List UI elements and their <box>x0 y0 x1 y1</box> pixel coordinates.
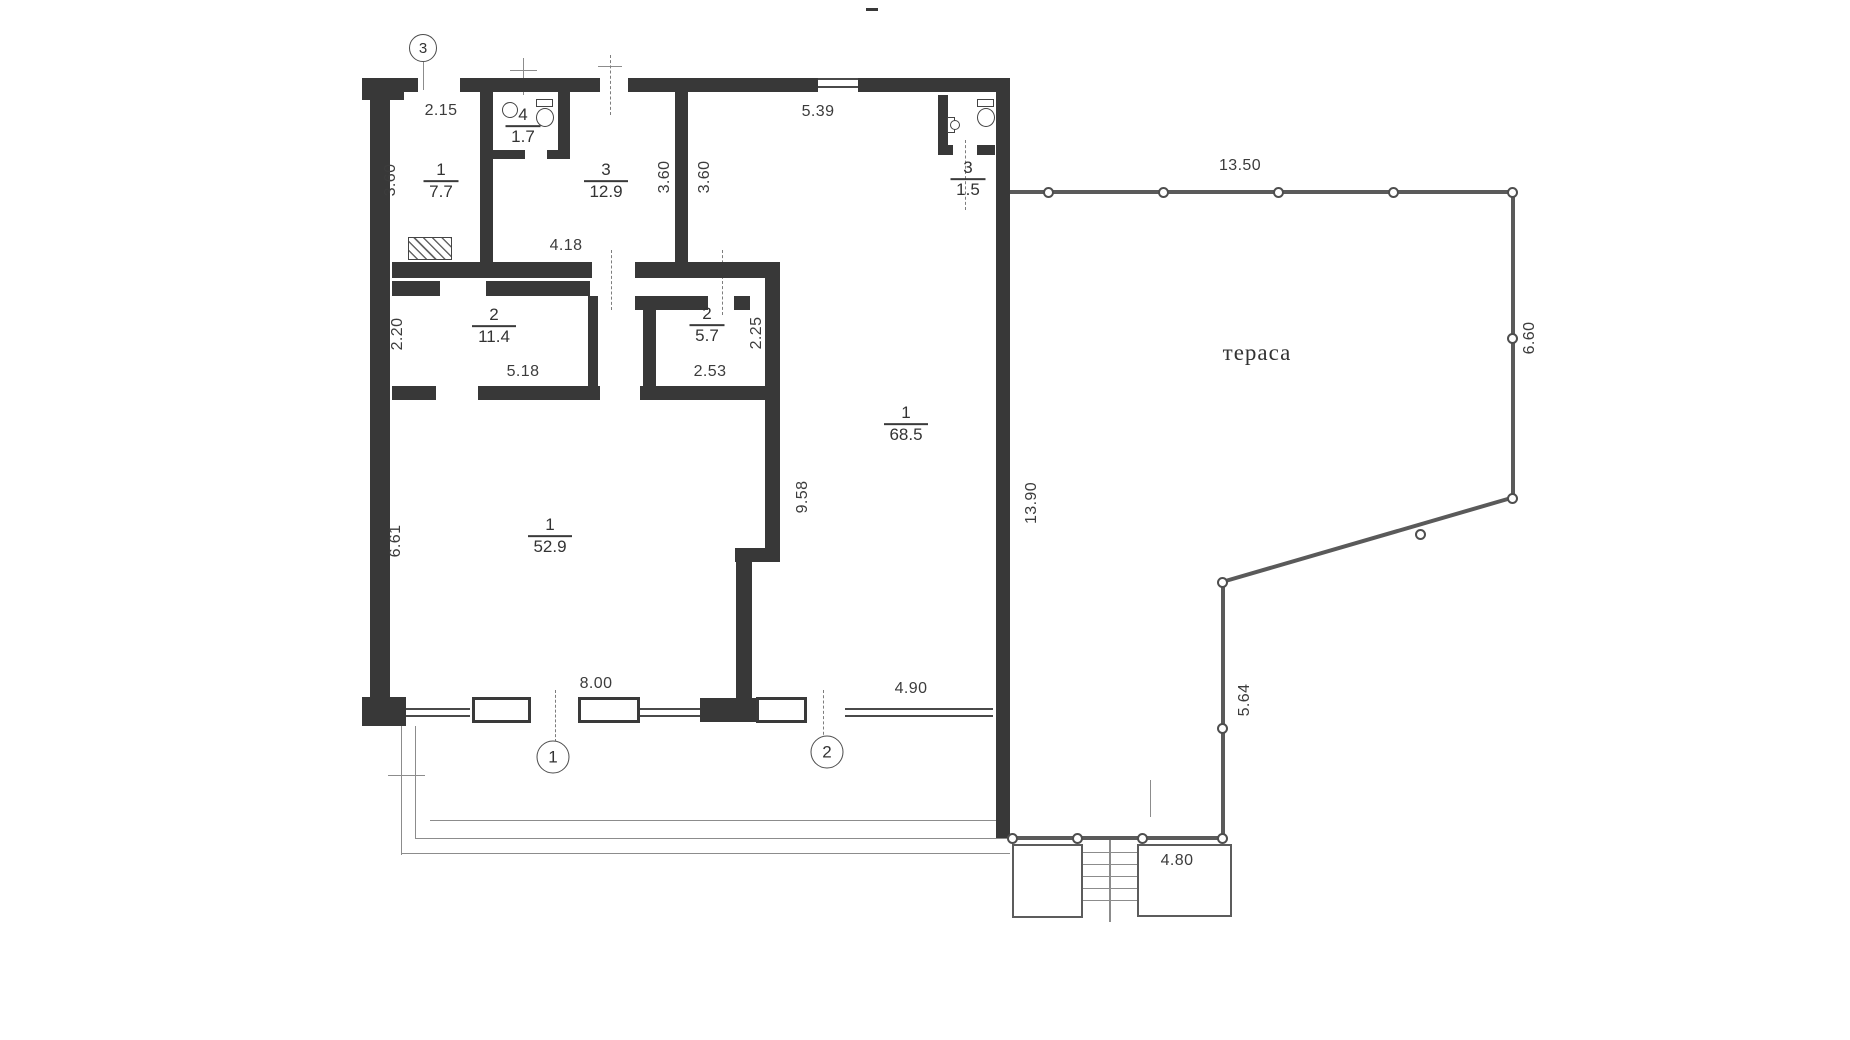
wall-segment <box>628 78 818 92</box>
dimension-label: 4.18 <box>550 237 583 255</box>
wall-segment <box>734 296 750 310</box>
dimension-label: 4.80 <box>1161 852 1194 870</box>
railing-post <box>1507 187 1518 198</box>
room-area: 11.4 <box>478 328 510 346</box>
wall-segment <box>675 92 688 262</box>
construction-line <box>1083 876 1137 877</box>
wall-segment <box>404 78 418 92</box>
railing-post <box>1072 833 1083 844</box>
room-number: 1 <box>901 404 910 422</box>
wall-segment <box>493 150 525 159</box>
wall-segment <box>736 558 752 698</box>
room-number: 4 <box>518 106 527 124</box>
dimension-label: 2.20 <box>389 318 407 351</box>
dimension-label: 3.60 <box>696 161 714 194</box>
window <box>578 697 640 723</box>
wall-segment <box>547 150 570 159</box>
railing-post <box>1217 833 1228 844</box>
window <box>472 697 531 723</box>
terrace-railing <box>1010 836 1222 840</box>
railing-post <box>1507 333 1518 344</box>
wall-segment <box>635 262 780 278</box>
wall-segment <box>640 386 780 400</box>
centerline-dashed <box>555 690 556 742</box>
centerline-dashed <box>610 55 611 115</box>
room-label: 25.7 <box>690 305 725 345</box>
railing-post <box>1388 187 1399 198</box>
wall-segment <box>700 698 756 722</box>
centerline-dashed <box>823 690 824 740</box>
dimension-label: 4.90 <box>895 680 928 698</box>
wall-segment <box>938 145 953 155</box>
railing-post <box>1415 529 1426 540</box>
railing-post <box>1507 493 1518 504</box>
room-label: 31.5 <box>951 159 986 199</box>
room-number: 2 <box>489 306 498 324</box>
stove-icon <box>408 237 452 260</box>
dimension-label: 5.39 <box>802 103 835 121</box>
room-label: 152.9 <box>528 516 572 556</box>
construction-line <box>388 775 425 776</box>
room-number: 2 <box>702 305 711 323</box>
room-area: 7.7 <box>429 183 453 201</box>
window-sill <box>406 708 470 717</box>
window-sill <box>818 78 858 88</box>
room-number: 3 <box>601 161 610 179</box>
wall-segment <box>996 78 1010 838</box>
railing-post <box>1273 187 1284 198</box>
terrace-railing <box>1221 584 1225 840</box>
floor-plan-scan: тераса 17.741.7312.931.5211.425.7152.916… <box>0 0 1850 1040</box>
construction-line <box>401 853 1010 854</box>
railing-post <box>1217 723 1228 734</box>
railing-post <box>1158 187 1169 198</box>
room-number: 3 <box>963 159 972 177</box>
room-area: 5.7 <box>695 327 719 345</box>
toilet-bowl-icon <box>977 108 995 127</box>
dimension-label: 2.25 <box>748 317 766 350</box>
dimension-label: 6.60 <box>1521 322 1539 355</box>
railing-post <box>1137 833 1148 844</box>
terrace-label: тераса <box>1223 340 1292 366</box>
room-area: 1.7 <box>511 128 535 146</box>
room-label: 41.7 <box>506 106 541 146</box>
wall-segment <box>588 296 598 386</box>
construction-line <box>423 62 424 90</box>
room-label: 211.4 <box>472 306 516 346</box>
construction-line <box>415 726 416 838</box>
wall-segment <box>392 281 440 296</box>
dimension-label: 5.18 <box>507 363 540 381</box>
porch-platform <box>1012 844 1083 918</box>
dimension-label: 13.90 <box>1023 482 1041 524</box>
room-label: 312.9 <box>584 161 628 201</box>
terrace-railing <box>1010 190 1512 194</box>
wall-segment <box>392 386 436 400</box>
wall-segment <box>478 386 600 400</box>
dimension-label: 5.64 <box>1236 684 1254 717</box>
dimension-label: 13.50 <box>1219 157 1261 175</box>
room-label: 17.7 <box>424 161 459 201</box>
dimension-label: 3.60 <box>382 164 400 197</box>
wall-segment <box>486 281 590 296</box>
terrace-railing <box>1221 496 1512 584</box>
wall-segment <box>977 145 995 155</box>
window-sill <box>845 708 993 717</box>
wall-segment <box>392 262 592 278</box>
railing-post <box>1217 577 1228 588</box>
wall-segment <box>460 78 600 92</box>
terrace-railing <box>1511 192 1515 500</box>
construction-line <box>1083 900 1137 901</box>
dimension-label: 2.15 <box>425 102 458 120</box>
railing-post <box>1007 833 1018 844</box>
construction-line <box>1083 864 1137 865</box>
dimension-label: 3.60 <box>656 161 674 194</box>
window <box>756 697 807 723</box>
room-area: 68.5 <box>889 426 922 444</box>
room-number: 1 <box>436 161 445 179</box>
wall-segment <box>558 92 570 158</box>
room-number: 1 <box>545 516 554 534</box>
dimension-label: 8.00 <box>580 675 613 693</box>
construction-line <box>430 820 996 821</box>
sink-bowl-icon <box>950 120 960 130</box>
axis-marker: 3 <box>409 34 437 62</box>
wall-segment <box>858 78 1010 92</box>
axis-marker: 2 <box>811 736 844 769</box>
construction-line <box>1083 852 1137 853</box>
wall-segment <box>765 278 780 398</box>
wall-segment <box>765 398 780 558</box>
wall-segment <box>480 92 493 262</box>
dimension-label: 2.53 <box>694 363 727 381</box>
dimension-label: 6.61 <box>387 525 405 558</box>
wall-segment <box>362 697 406 726</box>
window-sill <box>640 708 700 717</box>
construction-line <box>415 838 1010 839</box>
room-area: 1.5 <box>956 181 980 199</box>
room-area: 12.9 <box>589 183 622 201</box>
wall-segment <box>866 8 878 11</box>
wall-segment <box>643 310 656 386</box>
railing-post <box>1043 187 1054 198</box>
room-area: 52.9 <box>533 538 566 556</box>
centerline-dashed <box>611 250 612 310</box>
construction-line <box>1083 888 1137 889</box>
toilet-tank-icon <box>977 99 994 107</box>
construction-line <box>401 726 402 855</box>
dimension-label: 9.58 <box>794 481 812 514</box>
axis-marker: 1 <box>537 741 570 774</box>
construction-line <box>1150 780 1151 817</box>
room-label: 168.5 <box>884 404 928 444</box>
